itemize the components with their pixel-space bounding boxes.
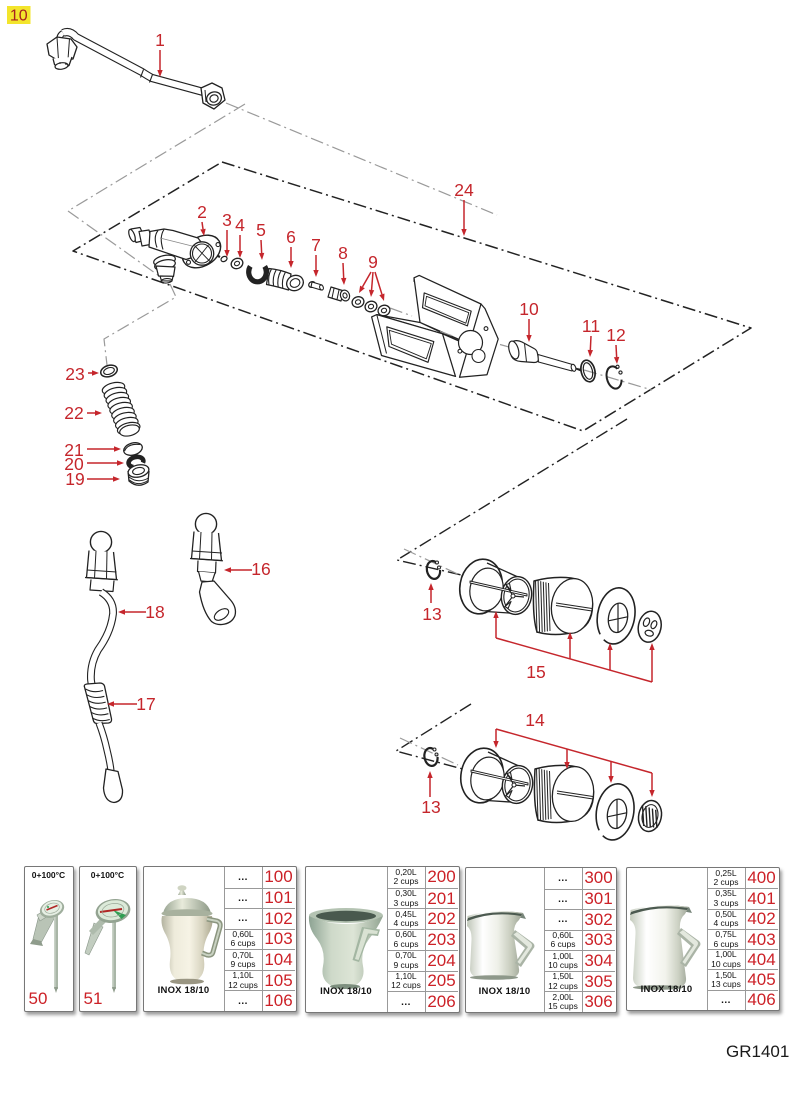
svg-text:14: 14 xyxy=(525,710,545,730)
svg-text:8: 8 xyxy=(338,243,348,263)
svg-text:11: 11 xyxy=(582,316,600,336)
svg-text:7: 7 xyxy=(311,235,321,255)
svg-text:10: 10 xyxy=(10,8,28,25)
svg-text:2: 2 xyxy=(197,202,207,222)
svg-text:10: 10 xyxy=(519,299,539,319)
svg-text:3: 3 xyxy=(222,210,232,230)
svg-text:9: 9 xyxy=(368,252,378,272)
svg-text:5: 5 xyxy=(256,220,266,240)
svg-text:17: 17 xyxy=(136,694,155,714)
svg-text:13: 13 xyxy=(421,797,440,817)
svg-text:22: 22 xyxy=(64,403,83,423)
svg-text:1: 1 xyxy=(155,30,165,50)
svg-text:19: 19 xyxy=(65,469,84,489)
svg-text:23: 23 xyxy=(65,364,84,384)
svg-text:18: 18 xyxy=(145,602,164,622)
svg-text:13: 13 xyxy=(422,604,441,624)
svg-text:24: 24 xyxy=(454,180,474,200)
svg-text:12: 12 xyxy=(606,325,625,345)
svg-text:15: 15 xyxy=(526,662,545,682)
svg-text:4: 4 xyxy=(235,215,245,235)
svg-text:6: 6 xyxy=(286,227,296,247)
svg-text:16: 16 xyxy=(251,559,270,579)
